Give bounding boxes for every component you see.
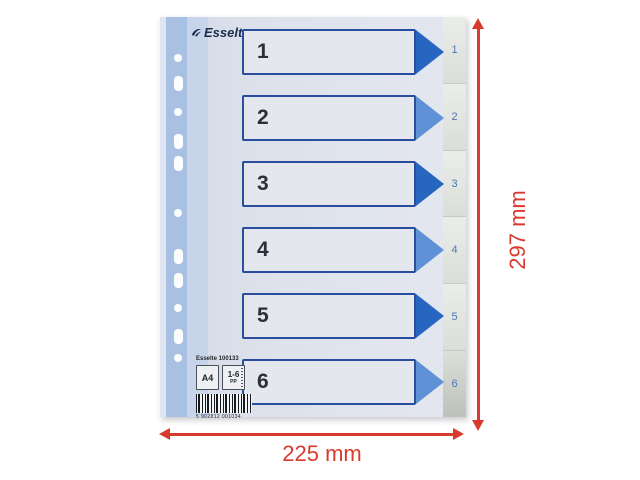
format-badge: A4 bbox=[196, 365, 219, 390]
barcode-digits: 5 902812 001034 bbox=[196, 414, 258, 420]
label-box: 6 bbox=[242, 359, 416, 405]
row-number: 3 bbox=[244, 172, 269, 196]
product-code: Esselte 100133 bbox=[196, 356, 258, 362]
tab-number: 6 bbox=[451, 378, 457, 390]
index-row-6: 6 bbox=[242, 359, 437, 405]
barcode bbox=[196, 394, 252, 413]
arrowhead-left-icon bbox=[159, 428, 170, 440]
index-row-4: 4 bbox=[242, 227, 437, 273]
arrow-right-icon bbox=[416, 162, 444, 206]
width-dimension-line bbox=[170, 433, 454, 436]
punch-hole bbox=[174, 304, 182, 312]
punch-hole bbox=[174, 329, 183, 344]
tab-number: 1 bbox=[451, 44, 457, 56]
index-row-5: 5 bbox=[242, 293, 437, 339]
tab-number: 3 bbox=[451, 178, 457, 190]
label-box: 1 bbox=[242, 29, 416, 75]
material-label: PP bbox=[230, 380, 237, 385]
index-row-1: 1 bbox=[242, 29, 437, 75]
tab-segment-1: 1 bbox=[443, 17, 466, 83]
esselte-logo: Esselte bbox=[191, 25, 250, 40]
tab-segment-5: 5 bbox=[443, 283, 466, 350]
arrow-right-icon bbox=[416, 228, 444, 272]
row-number: 1 bbox=[244, 40, 269, 64]
index-row-2: 2 bbox=[242, 95, 437, 141]
tab-column: 1 2 3 4 5 6 bbox=[443, 17, 466, 417]
arrow-right-icon bbox=[416, 294, 444, 338]
tab-number: 2 bbox=[451, 111, 457, 123]
row-number: 4 bbox=[244, 238, 269, 262]
tab-segment-6: 6 bbox=[443, 350, 466, 417]
punch-hole bbox=[174, 134, 183, 149]
punch-hole bbox=[174, 249, 183, 264]
arrowhead-down-icon bbox=[472, 420, 484, 431]
tab-segment-2: 2 bbox=[443, 83, 466, 150]
tab-number: 5 bbox=[451, 311, 457, 323]
punch-hole bbox=[174, 156, 183, 171]
row-number: 2 bbox=[244, 106, 269, 130]
punch-hole bbox=[174, 273, 183, 288]
punch-hole bbox=[174, 108, 182, 116]
arrow-right-icon bbox=[416, 96, 444, 140]
divider-sheet: 1 2 3 4 5 6 Esselte 1 2 3 4 bbox=[160, 17, 466, 417]
index-row-3: 3 bbox=[242, 161, 437, 207]
punch-strip bbox=[166, 17, 187, 417]
arrowhead-right-icon bbox=[453, 428, 464, 440]
tab-segment-4: 4 bbox=[443, 216, 466, 283]
label-box: 3 bbox=[242, 161, 416, 207]
format-label: A4 bbox=[202, 373, 214, 383]
row-number: 5 bbox=[244, 304, 269, 328]
spec-badges: A4 1-6 PP bbox=[196, 365, 258, 390]
product-info-block: Esselte 100133 A4 1-6 PP 5 902812 001034 bbox=[196, 356, 258, 420]
width-dimension-label: 225 mm bbox=[252, 441, 392, 467]
product-image: 1 2 3 4 5 6 Esselte 1 2 3 4 bbox=[0, 0, 640, 480]
punch-hole bbox=[174, 209, 182, 217]
arrowhead-up-icon bbox=[472, 18, 484, 29]
mini-tabs-decoration bbox=[241, 368, 243, 387]
punch-hole bbox=[174, 54, 182, 62]
height-dimension-line bbox=[477, 28, 480, 421]
label-box: 2 bbox=[242, 95, 416, 141]
tab-segment-3: 3 bbox=[443, 150, 466, 217]
punch-hole bbox=[174, 76, 183, 91]
range-badge: 1-6 PP bbox=[222, 365, 245, 390]
tab-number: 4 bbox=[451, 244, 457, 256]
punch-hole bbox=[174, 354, 182, 362]
esselte-leaf-icon bbox=[191, 27, 202, 38]
range-label: 1-6 bbox=[228, 371, 240, 379]
label-box: 4 bbox=[242, 227, 416, 273]
arrow-right-icon bbox=[416, 360, 444, 404]
arrow-right-icon bbox=[416, 30, 444, 74]
height-dimension-label: 297 mm bbox=[505, 184, 531, 276]
label-box: 5 bbox=[242, 293, 416, 339]
